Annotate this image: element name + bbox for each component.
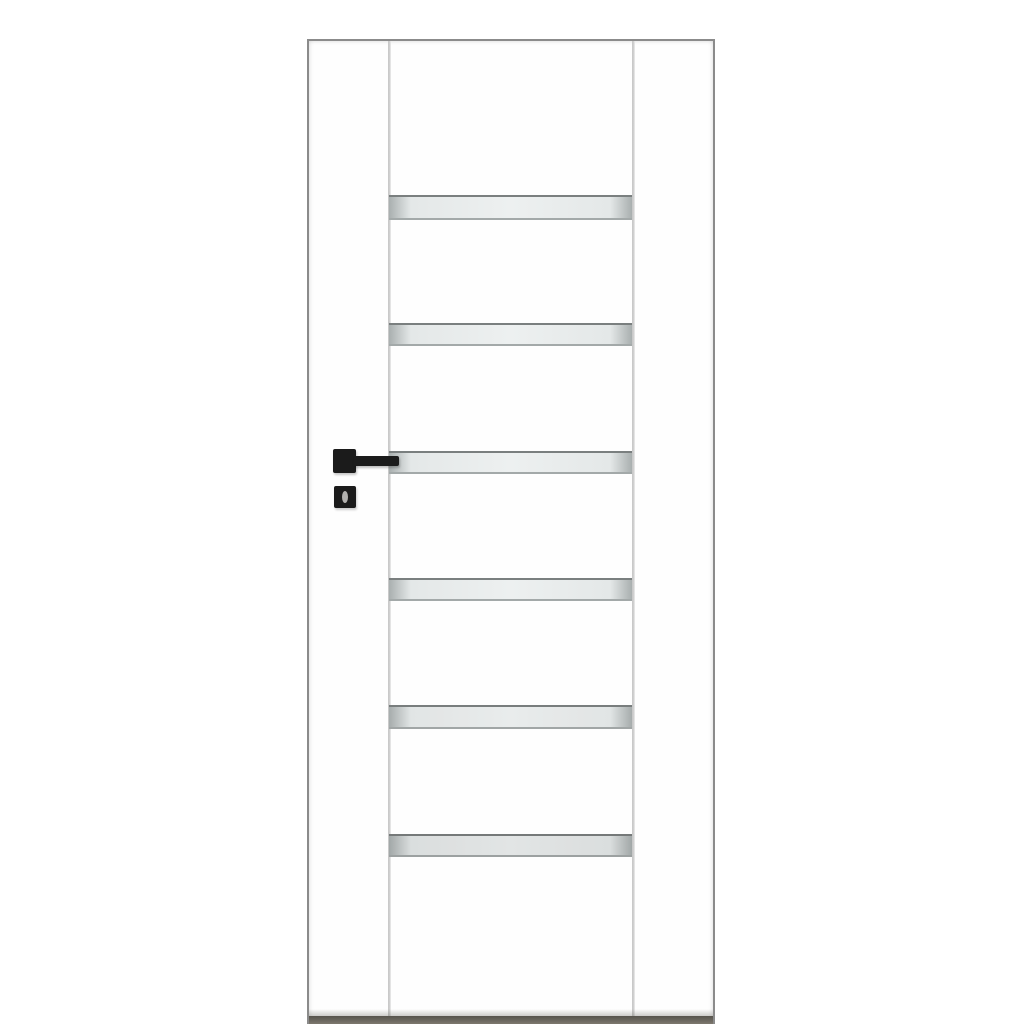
key-escutcheon — [334, 486, 356, 508]
door-handle-lever-icon — [354, 456, 399, 466]
door-bottom-shadow — [309, 1009, 713, 1016]
glass-strip — [389, 451, 632, 474]
door-bottom-edge — [309, 1016, 713, 1024]
door-leaf — [307, 39, 715, 1024]
glass-strip — [389, 834, 632, 857]
door-seam-right — [632, 41, 635, 1016]
keyhole-icon — [342, 491, 348, 503]
glass-strip — [389, 195, 632, 220]
product-photo — [0, 0, 1024, 1024]
glass-strip — [389, 323, 632, 346]
glass-strip — [389, 705, 632, 729]
door-seam-left — [388, 41, 391, 1016]
glass-strip — [389, 578, 632, 601]
door-handle-rosette — [333, 449, 356, 473]
